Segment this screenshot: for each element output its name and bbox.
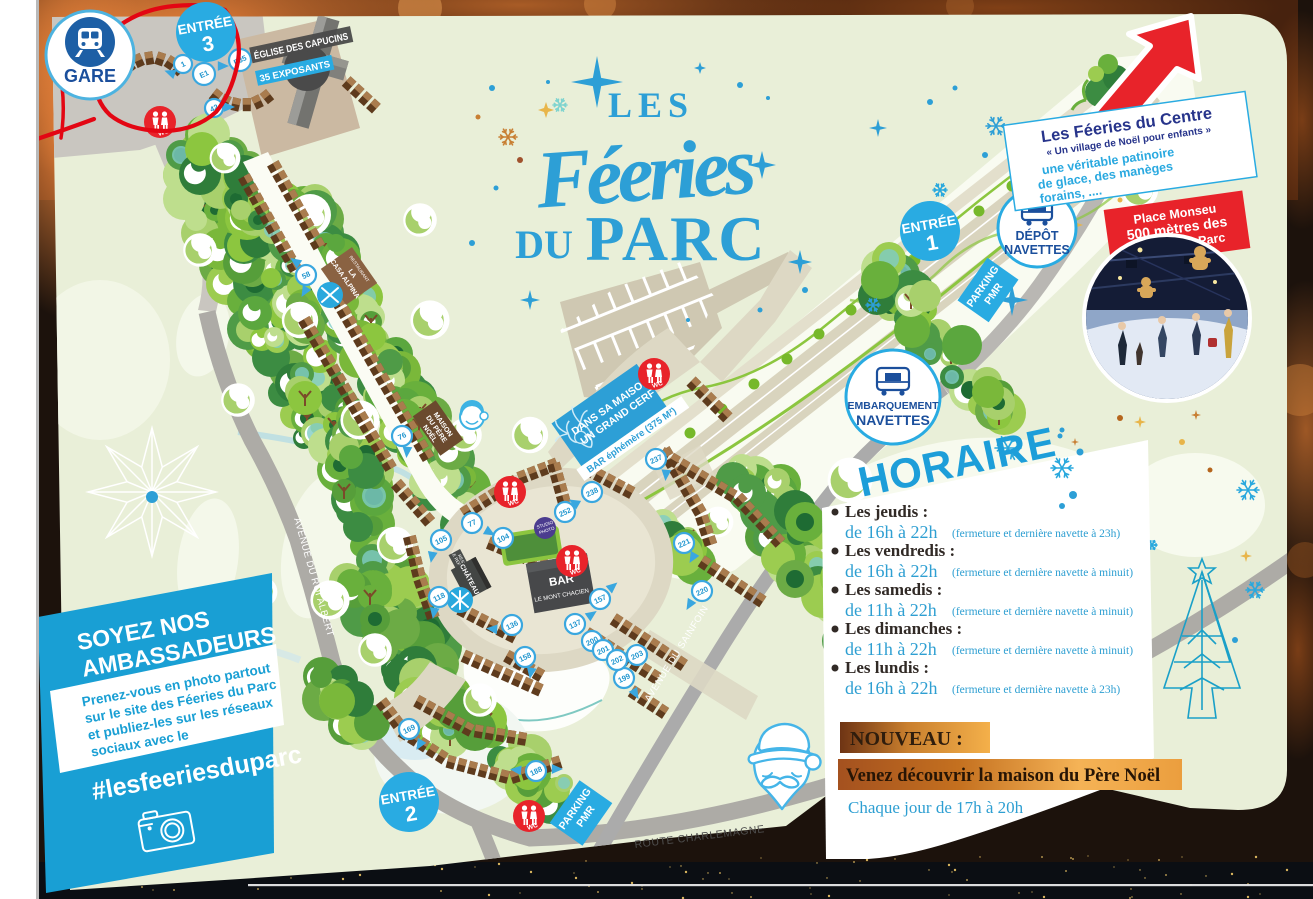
svg-text:Les lundis :: Les lundis :: [845, 658, 929, 677]
svg-text:PARC: PARC: [586, 203, 767, 274]
svg-text:de 11h à 22h: de 11h à 22h: [845, 600, 937, 620]
svg-text:de 16h à 22h: de 16h à 22h: [845, 522, 937, 542]
svg-text:Les jeudis :: Les jeudis :: [845, 502, 928, 521]
svg-text:de 16h à 22h: de 16h à 22h: [845, 561, 937, 581]
svg-text:NAVETTES: NAVETTES: [1004, 243, 1070, 257]
svg-text:Chaque jour de 17h à 20h: Chaque jour de 17h à 20h: [848, 798, 1024, 817]
svg-text:Venez découvrir la maison du P: Venez découvrir la maison du Père Noël: [846, 766, 1160, 786]
svg-text:(fermeture et dernière navette: (fermeture et dernière navette à 23h): [952, 684, 1120, 696]
svg-text:(fermeture et dernière navette: (fermeture et dernière navette à minuit): [952, 645, 1133, 657]
svg-text:EMBARQUEMENT: EMBARQUEMENT: [848, 400, 940, 412]
svg-text:Les dimanches :: Les dimanches :: [845, 619, 962, 638]
svg-text:NAVETTES: NAVETTES: [856, 412, 930, 428]
svg-text:(fermeture et dernière navette: (fermeture et dernière navette à 23h): [952, 528, 1120, 540]
svg-text:(fermeture et dernière navette: (fermeture et dernière navette à minuit): [952, 567, 1133, 579]
svg-text:de 11h à 22h: de 11h à 22h: [845, 639, 937, 659]
svg-text:Les samedis :: Les samedis :: [845, 580, 942, 599]
svg-text:de 16h à 22h: de 16h à 22h: [845, 678, 937, 698]
svg-text:Les vendredis :: Les vendredis :: [845, 541, 955, 560]
svg-text:LES: LES: [608, 85, 694, 125]
svg-text:NOUVEAU :: NOUVEAU :: [850, 728, 963, 750]
svg-text:(fermeture et dernière navette: (fermeture et dernière navette à minuit): [952, 606, 1133, 618]
svg-text:GARE: GARE: [64, 66, 116, 86]
svg-text:DÉPÔT: DÉPÔT: [1015, 228, 1058, 243]
svg-text:DU: DU: [515, 222, 573, 267]
